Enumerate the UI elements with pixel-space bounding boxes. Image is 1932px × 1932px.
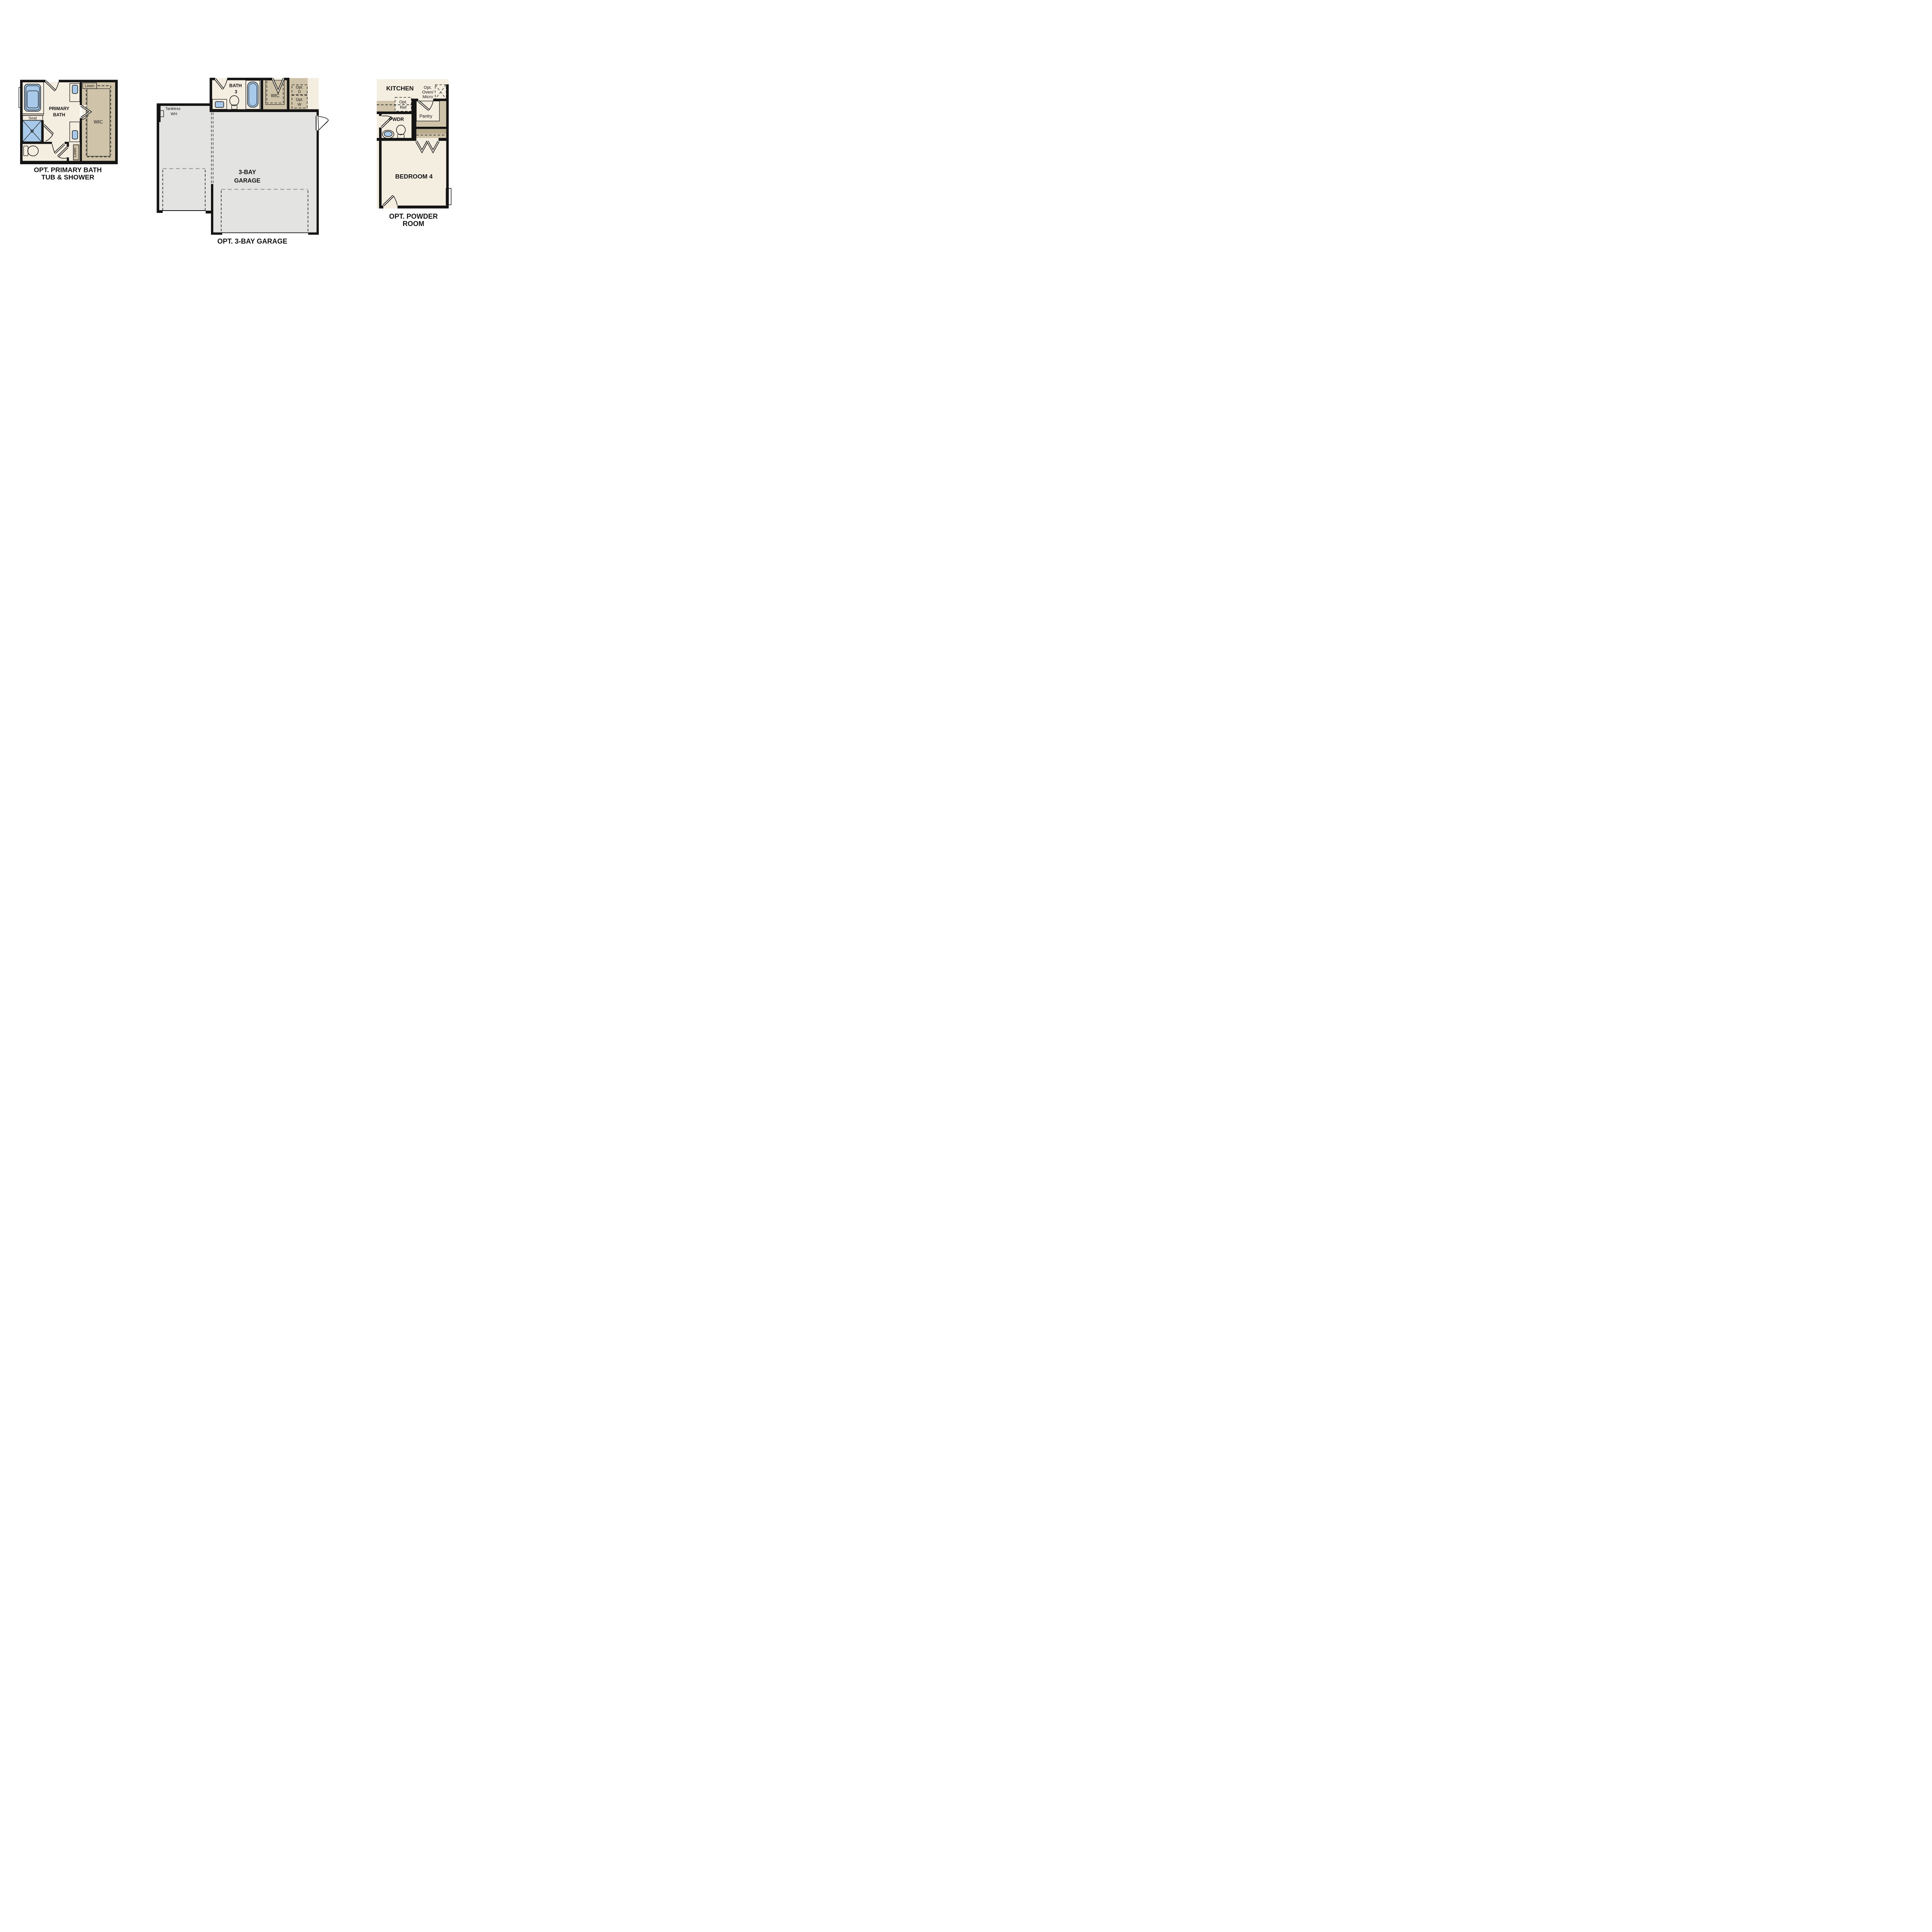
bath3-label: 3	[235, 89, 237, 95]
hall-floor	[69, 144, 73, 161]
floor-plan-sheet: Linen Seat PRIMARY BATH WIC Linen OPT. P…	[0, 0, 493, 638]
plan-caption: ROOM	[403, 220, 424, 228]
primary-bath-plan: Linen Seat PRIMARY BATH WIC Linen OPT. P…	[19, 80, 118, 181]
vanity-sink	[72, 131, 78, 139]
linen-bottom-label: Linen	[73, 148, 77, 157]
plan-caption: OPT. PRIMARY BATH	[34, 166, 102, 174]
bath3-label: BATH	[229, 83, 241, 88]
entry-door-leaf-line	[319, 121, 328, 130]
room-label: PRIMARY	[49, 107, 70, 111]
vanity-sink	[215, 102, 224, 107]
opt-dryer-label: Opt.	[296, 85, 303, 90]
seat-label: Seat	[29, 116, 37, 121]
garage-floor-left	[159, 106, 212, 210]
pwdr-label: PWDR	[389, 117, 404, 122]
opt-washer-label: Opt.	[296, 98, 303, 102]
ref-label: Opt.	[399, 100, 407, 105]
pantry-shelf	[417, 121, 446, 127]
garage-label: 3-BAY	[238, 169, 256, 176]
bedroom-label: BEDROOM 4	[395, 173, 433, 180]
opt-washer-label: W	[298, 103, 301, 107]
opt-dryer-label: D	[298, 90, 301, 94]
garage-plan: BATH 3 Tankless WH WIC Opt. D Opt. W 3-B…	[157, 78, 329, 245]
oven-micro-label: Opt.	[424, 85, 432, 90]
oven-micro-label: Micro	[423, 95, 433, 99]
pantry-label: Pantry	[419, 114, 432, 119]
vanity-sink	[72, 85, 78, 94]
plan-caption: OPT. POWDER	[389, 213, 438, 220]
pantry-shelf	[439, 101, 446, 121]
powder-room-plan: KITCHEN Opt. Oven/ Micro Opt. Ref Pantry…	[377, 79, 451, 228]
hall-bench-lower	[417, 134, 446, 138]
kitchen-label: KITCHEN	[386, 85, 413, 92]
kitchen-counter	[377, 101, 395, 112]
tankless-label: Tankless	[165, 107, 180, 111]
oven-micro-label: Oven/	[422, 90, 434, 95]
hall-bench	[417, 129, 446, 134]
garage-label: GARAGE	[234, 178, 260, 184]
plan-caption: TUB & SHOWER	[41, 173, 94, 181]
wic-label: WIC	[271, 94, 279, 98]
tankless-label: WH	[171, 112, 177, 116]
wic-label: WIC	[94, 119, 103, 124]
ref-label: Ref	[400, 105, 407, 110]
plan-caption: OPT. 3-BAY GARAGE	[217, 238, 287, 245]
room-label: BATH	[53, 113, 65, 117]
pedestal-sink-basin	[384, 131, 392, 137]
linen-top-label: Linen	[85, 84, 94, 88]
entry-door-leaf	[318, 116, 328, 130]
floor-plans-canvas: Linen Seat PRIMARY BATH WIC Linen OPT. P…	[0, 0, 493, 638]
garage-floor-main	[212, 112, 316, 233]
